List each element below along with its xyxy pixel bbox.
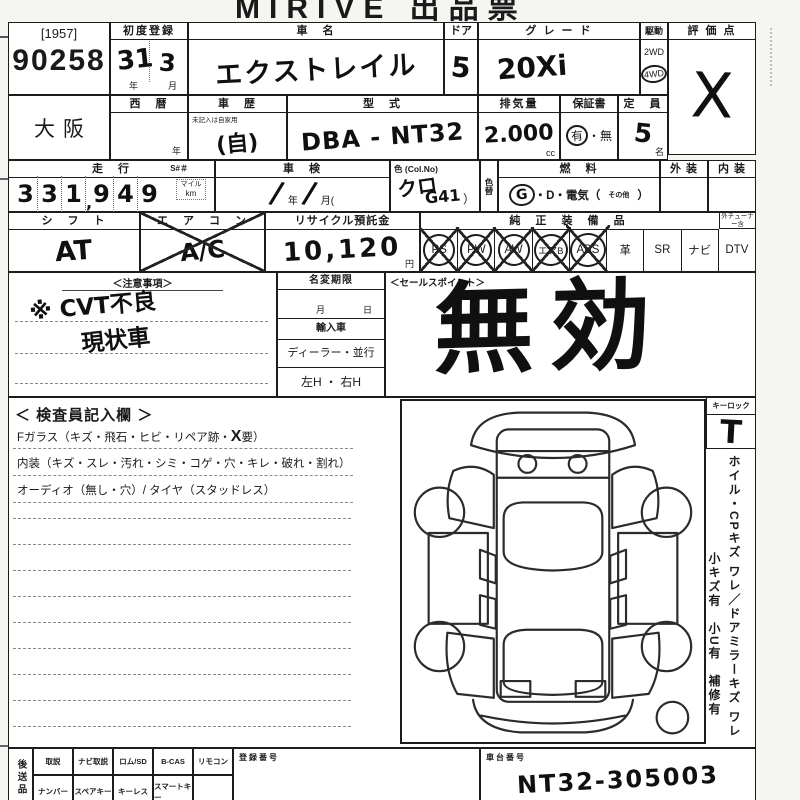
writing-line: [13, 648, 351, 649]
car-diagram-box: [400, 399, 706, 744]
aircon-cross-out-mark: [141, 213, 264, 271]
recycle-deposit-label: リサイクル預託金: [266, 213, 419, 230]
warranty-yes-circled: 有: [565, 123, 589, 146]
sales-point-cell: ＜セールスポイント＞ 無効: [385, 272, 756, 397]
writing-line: [13, 448, 353, 449]
fuel-paren-close: ）: [637, 187, 649, 203]
interior-cell: 内 装: [708, 160, 756, 212]
equipment-item-sunroof: SR: [643, 229, 680, 271]
score-value: X: [689, 58, 734, 132]
drive-option-2wd: 2WD: [641, 40, 667, 64]
auction-sheet-page: MIRIVE 出品票 [1957] 90258 初度登録 31 3 年 月 車 …: [0, 0, 800, 800]
first-registration-label: 初度登録: [111, 23, 187, 40]
car-name-value: エクストレイル: [214, 43, 418, 93]
mileage-unit-km: km: [177, 189, 205, 199]
recycle-deposit-cell: リサイクル預託金 10,120 円: [265, 212, 420, 272]
car-history-value: (自): [215, 124, 260, 160]
audio-tire-line: オーディオ（無し・穴）/ タイヤ（スタッドレス）: [17, 482, 275, 498]
writing-line: [13, 674, 351, 675]
registration-number-label: 登録番号: [234, 749, 479, 763]
side-note-line1: ホイル・CPキズ ワレ／ドアミラーキズ ワレ: [726, 455, 743, 747]
writing-line: [13, 544, 351, 545]
fuel-g-circled: G: [508, 183, 536, 208]
tuner-note: 外チューナー含: [719, 213, 755, 229]
car-history-label: 車 歴: [189, 96, 286, 113]
calendar-year-unit: 年: [172, 144, 181, 157]
lot-box: [1957] 90258: [8, 22, 110, 95]
lot-bracket: [1957]: [9, 23, 109, 41]
equipment-item-dtv: DTV: [718, 229, 755, 271]
equipment-item-airbag: エアB: [532, 229, 569, 271]
scan-artifact: [770, 28, 772, 86]
accessory-number-plate-cell: ナンバー: [33, 775, 73, 800]
name-change-header: 名変期限: [278, 273, 384, 290]
accessory-bcas-cell: B-CAS: [153, 748, 193, 775]
month-unit: 月: [168, 79, 177, 92]
warranty-separator: ・: [588, 127, 600, 144]
fuel-label: 燃 料: [499, 161, 659, 178]
writing-line: [13, 622, 351, 623]
car-top-view-diagram: [402, 401, 704, 742]
equipment-item-ps: PS: [421, 229, 457, 271]
shift-label: シ フ ト: [9, 213, 139, 230]
writing-line: [13, 502, 353, 503]
car-name-cell: 車 名 エクストレイル: [188, 22, 444, 95]
key-lock-cell: キーロック T: [706, 397, 756, 449]
mileage-digit: 9: [138, 176, 161, 212]
interior-condition-line: 内装（キズ・スレ・汚れ・シミ・コゲ・穴・キレ・破れ・割れ）: [17, 455, 351, 471]
mileage-unit-mile: マイル: [177, 180, 205, 189]
color-code-value: G41: [424, 185, 461, 207]
door-label: ドア: [445, 23, 477, 40]
auction-house-cell: 大阪: [8, 95, 110, 160]
writing-line: [15, 383, 268, 384]
equipment-item-aw: AW: [494, 229, 531, 271]
accessory-smart-key-cell: スマートキー: [153, 775, 193, 800]
handle-side-label: 左H ・ 右H: [278, 368, 384, 394]
fuel-options: ・D・電気（: [535, 187, 601, 203]
dealer-parallel-label: ディーラー・並行: [278, 340, 384, 368]
name-change-cell: 名変期限 月 日 輸入車 ディーラー・並行 左H ・ 右H: [277, 272, 385, 397]
send-later-label: 後送品: [14, 759, 28, 797]
calendar-year-label: 西 暦: [111, 96, 187, 113]
capacity-cell: 定 員 5 名: [618, 95, 668, 160]
accessory-rom-sd-cell: ロム/SD: [113, 748, 153, 775]
door-value: 5: [450, 50, 472, 85]
car-name-label: 車 名: [189, 23, 443, 40]
first-registration-cell: 初度登録 31 3 年 月: [110, 22, 188, 95]
score-cell: 評 価 点 X: [668, 22, 756, 155]
year-unit: 年: [129, 79, 138, 92]
shaken-month-unit: 月(: [321, 192, 334, 207]
mileage-digit: 3: [14, 176, 38, 212]
accessory-navi-manual-cell: ナビ取説: [73, 748, 113, 775]
registration-number-cell: 登録番号: [233, 748, 480, 800]
cross-mark: [419, 227, 459, 273]
car-history-cell: 車 歴 未記入は自家用 (自): [188, 95, 287, 160]
chassis-number-cell: 車台番号 NT32-305003: [480, 748, 756, 800]
equipment-item-leather: 革: [606, 229, 643, 271]
day-unit: 日: [363, 303, 372, 316]
first-reg-month-value: 3: [158, 48, 177, 77]
mileage-digit: 1: [62, 176, 86, 212]
exterior-label: 外 装: [661, 161, 707, 178]
mileage-digit: 4: [114, 176, 138, 212]
invalid-stamp: 無効: [434, 270, 667, 386]
door-cell: ドア 5: [444, 22, 478, 95]
warranty-no: 無: [600, 127, 612, 144]
grade-cell: グ レ ー ド 20Xi: [478, 22, 640, 95]
recycle-deposit-unit: 円: [405, 257, 414, 270]
accessory-remote-cell: リモコン: [193, 748, 233, 775]
chassis-number-value: NT32-305003: [516, 761, 719, 800]
fuel-cell: 燃 料 G ・D・電気（ その他 ）: [498, 160, 660, 212]
lot-number: 90258: [9, 41, 109, 81]
color-paren-close: ）: [463, 190, 475, 207]
exterior-cell: 外 装: [660, 160, 708, 212]
model-code-label: 型 式: [288, 96, 477, 113]
capacity-value: 5: [632, 118, 653, 150]
accessory-blank-cell: [193, 775, 233, 800]
equipment-item-navi: ナビ: [681, 229, 718, 271]
shaken-year-strike: ∕: [268, 180, 285, 208]
equipment-cell: 純 正 装 備 品 外チューナー含 PS PW AW エアB: [420, 212, 756, 272]
writing-line: [13, 518, 351, 519]
writing-line: [15, 353, 268, 354]
grade-value: 20Xi: [496, 49, 568, 87]
model-code-cell: 型 式 DBA - NT32: [287, 95, 478, 160]
aircon-cell: エ ア コ ン A/C: [140, 212, 265, 272]
fglass-line: Fガラス（キズ・飛石・ヒビ・リペア跡・X要）: [17, 428, 264, 446]
accessory-keyless-cell: キーレス: [113, 775, 153, 800]
writing-line: [13, 700, 351, 701]
color-change-cell: 色替: [480, 160, 498, 212]
equipment-item-pw: PW: [457, 229, 494, 271]
fglass-x-mark: X: [231, 428, 242, 445]
edge-tick: [0, 745, 8, 747]
serial-label: S#＃: [170, 163, 188, 174]
interior-label: 内 装: [709, 161, 755, 178]
shift-value: AT: [54, 234, 93, 268]
displacement-unit: cc: [546, 148, 555, 158]
cross-mark: [493, 227, 533, 273]
caution-note-line2: 現状車: [79, 317, 151, 358]
recycle-deposit-value: 10,120: [283, 232, 403, 268]
shaken-year-unit: 年: [288, 192, 298, 207]
capacity-label: 定 員: [619, 96, 667, 113]
writing-line: [13, 570, 351, 571]
import-car-label: 輸入車: [278, 319, 384, 340]
fuel-other-label: その他: [600, 190, 637, 200]
mileage-digit: 3: [38, 176, 62, 212]
calendar-year-cell: 西 暦 年: [110, 95, 188, 160]
model-code-value: DBA - NT32: [300, 117, 465, 156]
drive-cell: 駆動 2WD 4WD: [640, 22, 668, 95]
writing-line: [13, 726, 351, 727]
car-history-note: 未記入は自家用: [189, 113, 286, 124]
first-reg-year-value: 31: [116, 43, 155, 77]
shaken-cell: 車 検 ∕ 年 ∕ 月(: [215, 160, 390, 212]
mileage-digit: 9: [90, 176, 114, 212]
warranty-label: 保証書: [561, 96, 617, 113]
warranty-cell: 保証書 有 ・ 無: [560, 95, 618, 160]
score-label: 評 価 点: [669, 23, 755, 40]
edge-tick: [0, 178, 8, 180]
drive-option-4wd-circled: 4WD: [640, 64, 668, 85]
color-cell: 色 (Col.No) クロ G41 ）: [390, 160, 480, 212]
equipment-item-abs: ABS: [569, 229, 606, 271]
send-later-cell: 後送品: [8, 748, 33, 800]
month-unit: 月: [316, 303, 325, 316]
writing-line: [13, 596, 351, 597]
cross-mark: [531, 227, 571, 273]
capacity-unit: 名: [655, 145, 664, 158]
displacement-cell: 排気量 2.000 cc: [478, 95, 560, 160]
shaken-month-strike: ∕: [301, 180, 318, 208]
displacement-value: 2.000: [484, 120, 555, 149]
grade-label: グ レ ー ド: [479, 23, 639, 40]
side-note-line2: 小キズ有 小U有 補修有: [706, 552, 723, 747]
auction-house-value: 大阪: [26, 113, 92, 143]
caution-notes-cell: ＜注意事項＞ ※ CVT不良 現状車: [8, 272, 277, 397]
writing-line: [13, 475, 353, 476]
drive-label: 駆動: [641, 23, 667, 40]
color-change-label: 色替: [483, 178, 495, 195]
accessory-spare-key-cell: スペアキー: [73, 775, 113, 800]
mileage-cell: 走 行 S#＃ 3 3 1 , 9 4 9 マイル km: [8, 160, 215, 212]
key-lock-value: T: [719, 412, 743, 451]
cross-mark: [456, 227, 496, 273]
displacement-label: 排気量: [479, 96, 559, 113]
shift-cell: シ フ ト AT: [8, 212, 140, 272]
accessory-manual-cell: 取説: [33, 748, 73, 775]
